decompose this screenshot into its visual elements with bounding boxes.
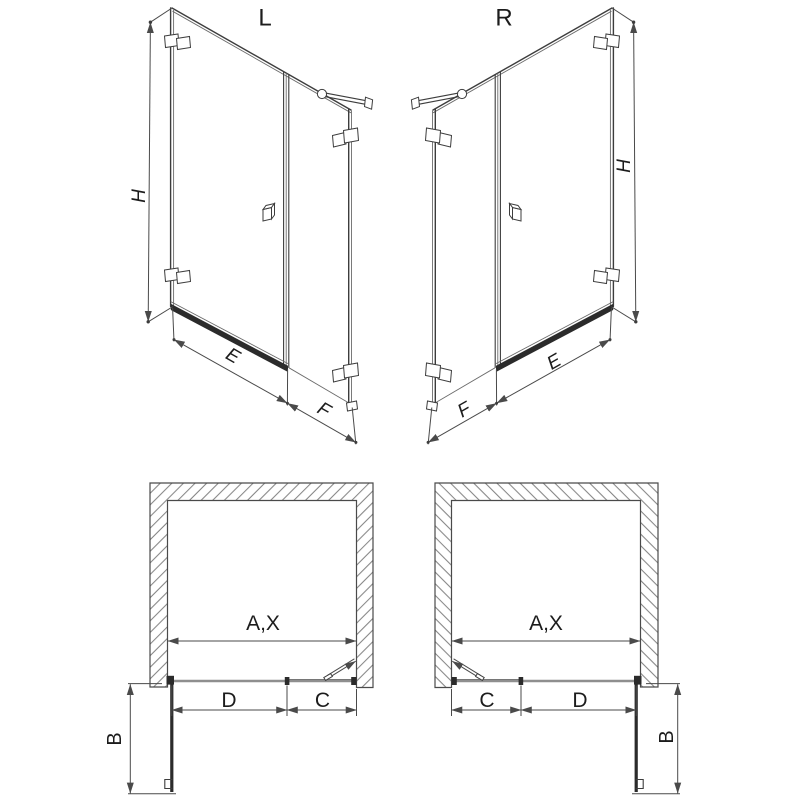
dim-label-e-left: E (222, 344, 244, 369)
diagram-canvas: L R H H E F E F A,X A,X D C C D B B (0, 0, 800, 800)
dim-label-f-right: F (454, 398, 476, 423)
dim-label-d-left: D (221, 689, 236, 712)
dim-label-ax-right: A,X (529, 612, 563, 635)
dim-label-d-right: D (572, 689, 587, 712)
dim-label-h-left: H (129, 189, 150, 203)
dim-label-f-left: F (313, 398, 335, 423)
dim-label-b-right: B (656, 730, 678, 743)
dim-label-ax-left: A,X (246, 612, 280, 635)
variant-label-right: R (495, 5, 512, 32)
plan-view-left (128, 483, 373, 794)
dim-label-e-right: E (544, 350, 566, 375)
shower-door-dimension-diagram: L R H H E F E F A,X A,X D C C D B B (0, 0, 800, 800)
dim-label-c-left: C (315, 689, 330, 712)
dim-label-b-left: B (104, 732, 126, 745)
plan-view-right (435, 483, 680, 794)
dim-label-h-right: H (614, 159, 635, 173)
front-view-right (411, 8, 637, 444)
variant-label-left: L (258, 5, 271, 32)
dim-label-c-right: C (479, 689, 494, 712)
labels: L R H H E F E F A,X A,X D C C D B B (104, 5, 678, 746)
front-view-left (147, 8, 373, 444)
